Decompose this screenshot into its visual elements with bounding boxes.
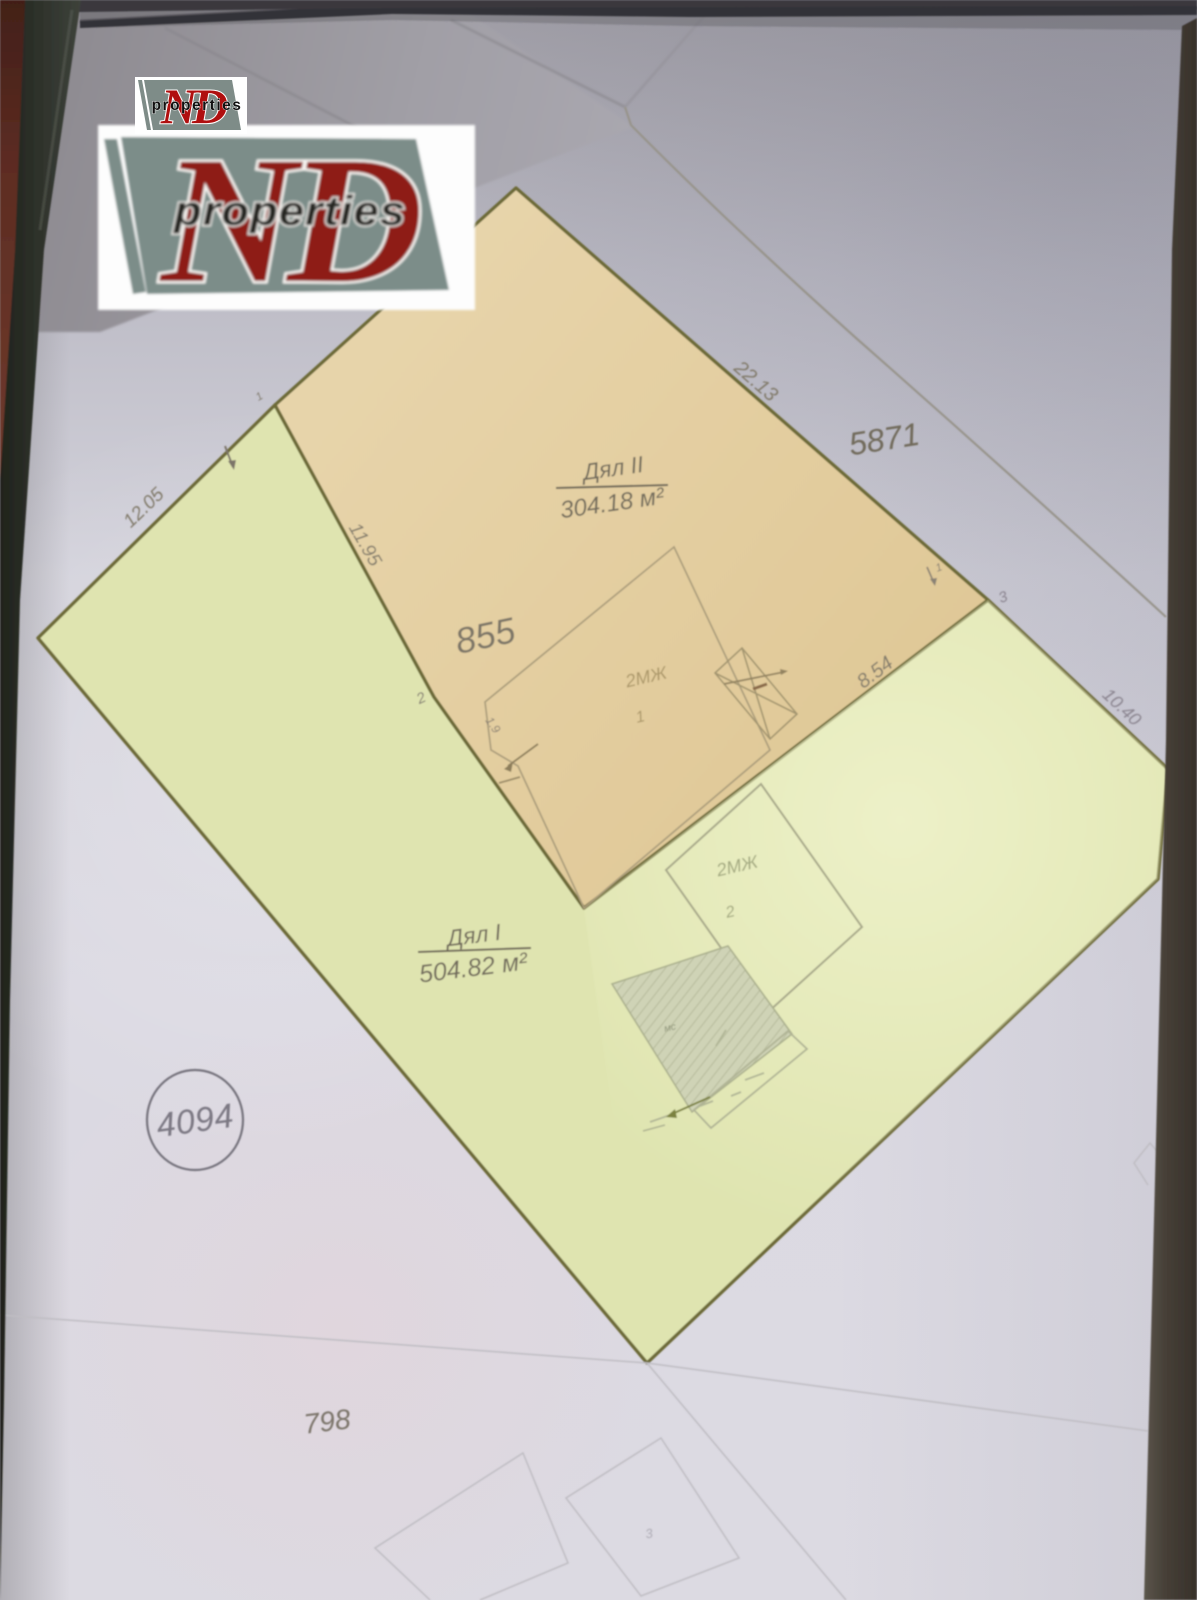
svg-text:798: 798 — [302, 1403, 353, 1440]
svg-text:properties: properties — [152, 97, 243, 114]
svg-text:properties: properties — [173, 187, 406, 234]
